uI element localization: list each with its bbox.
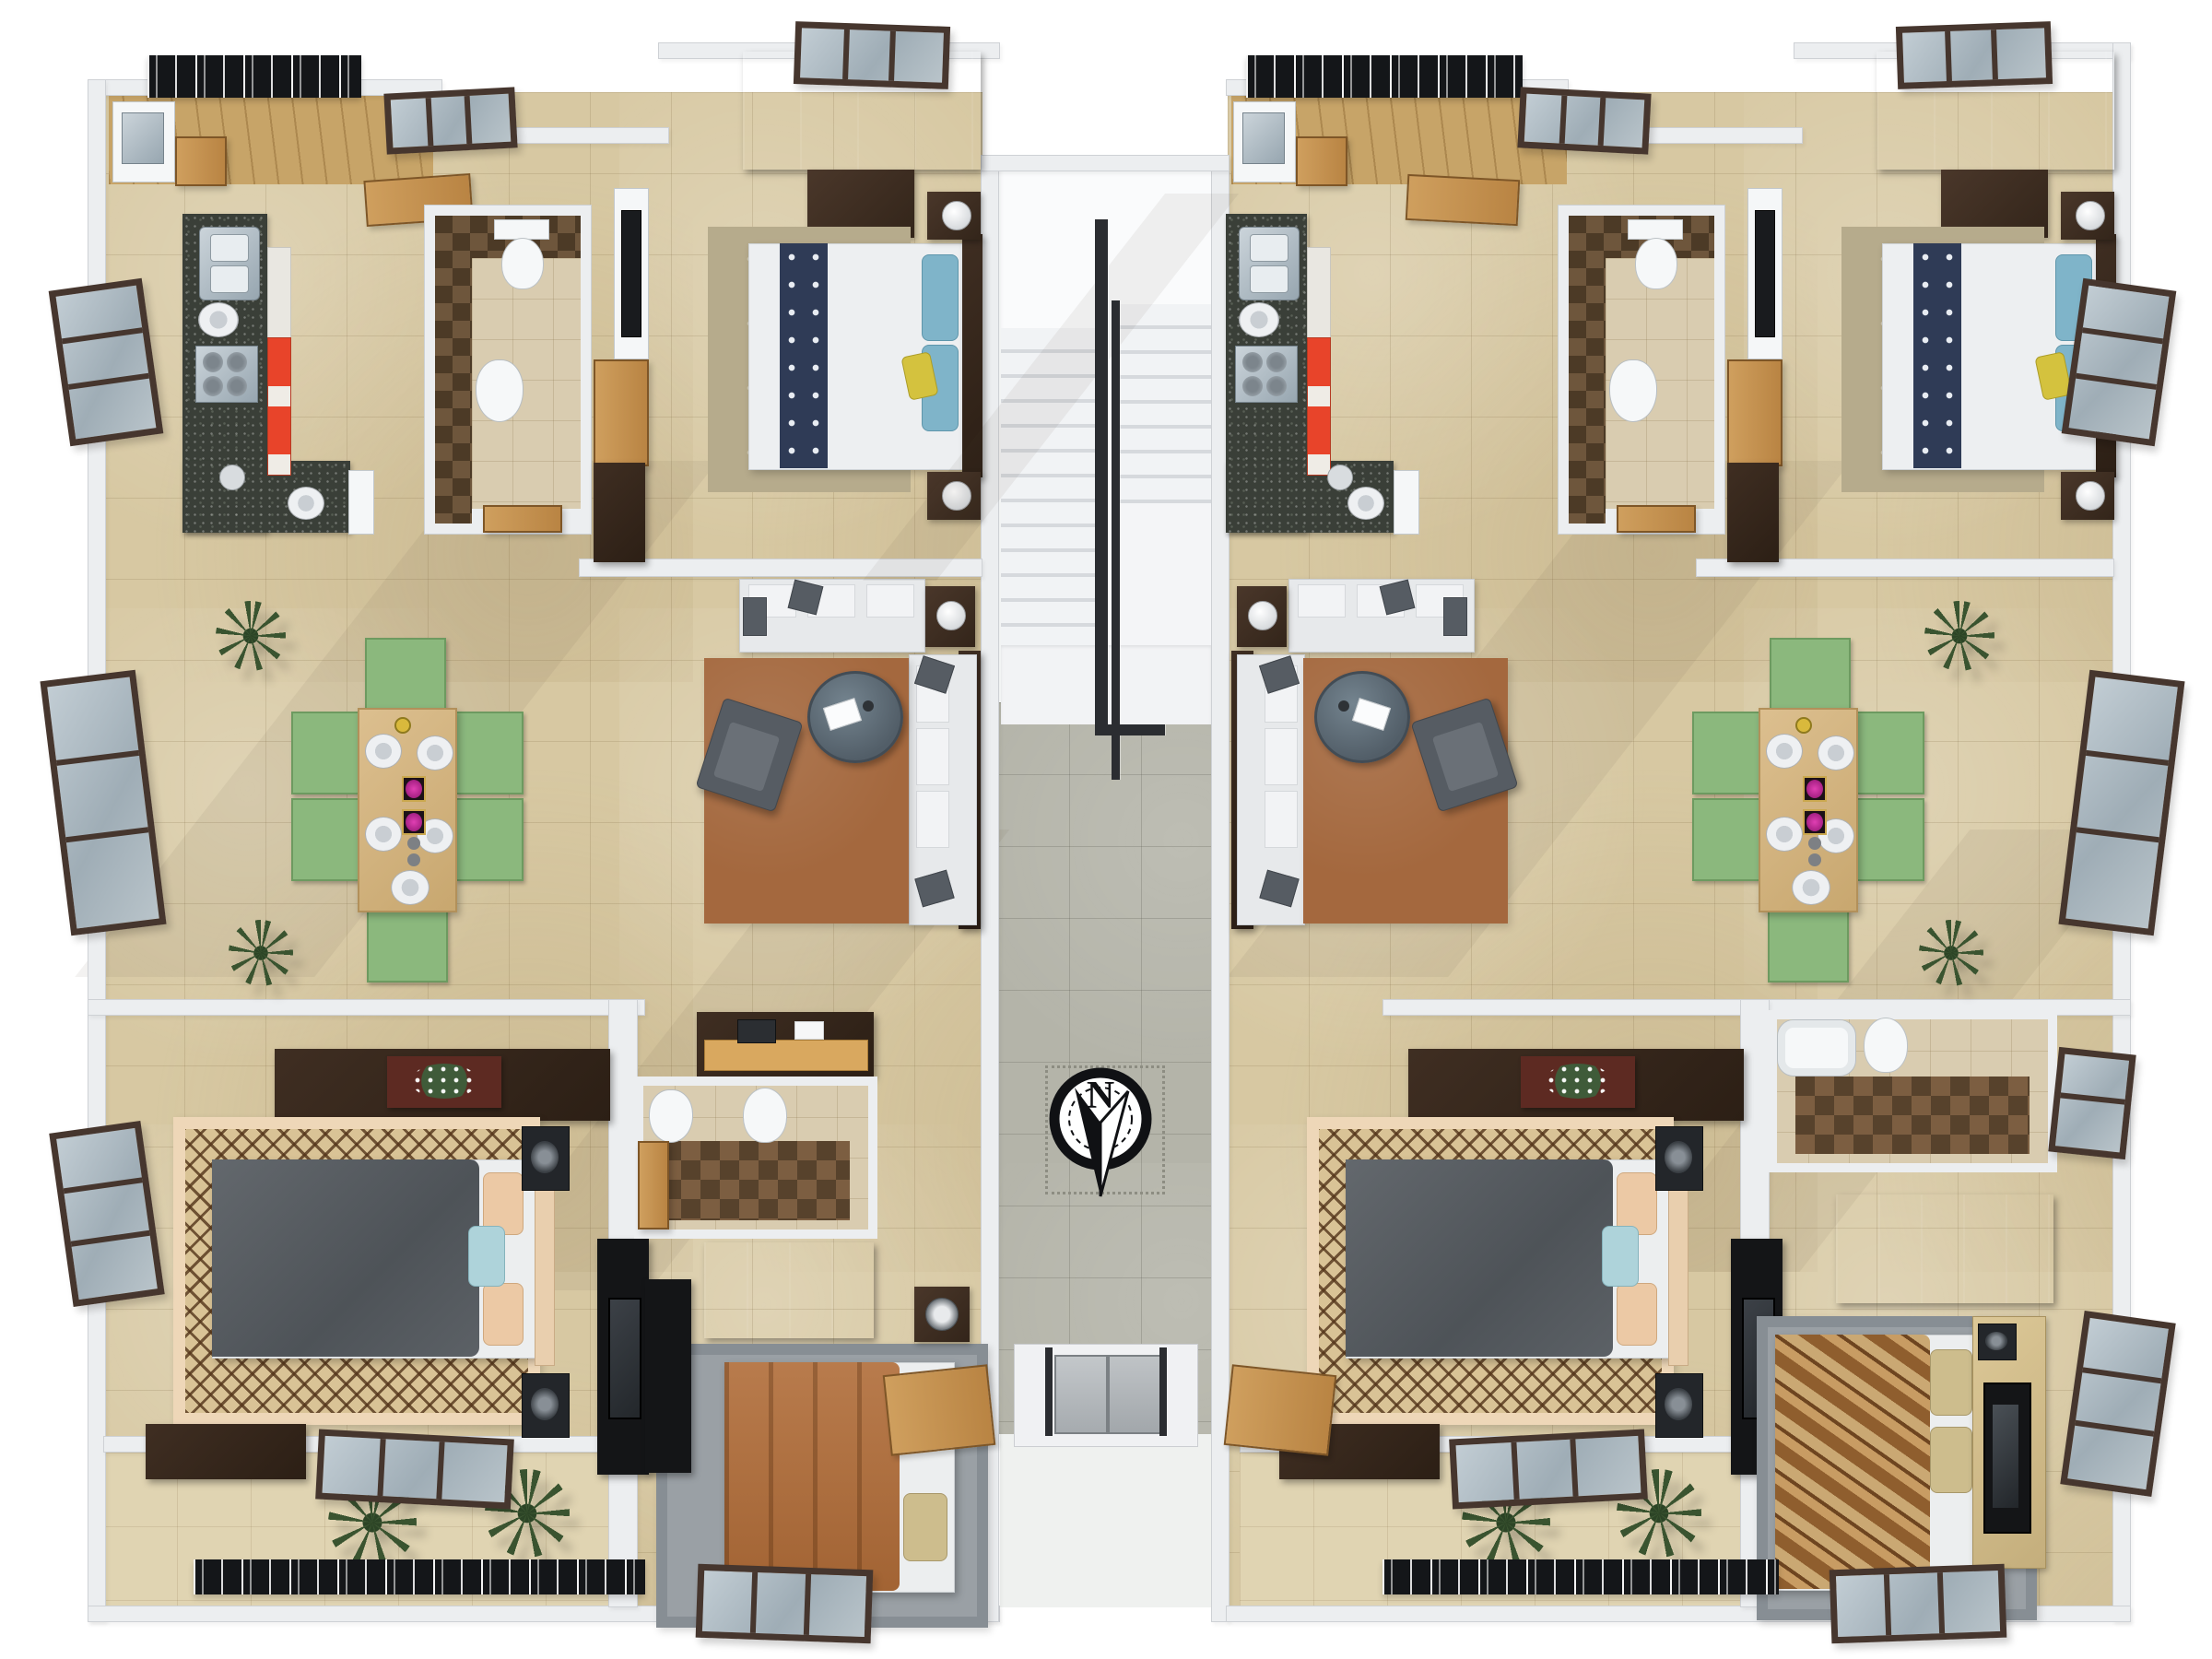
left-dining-bottle — [394, 717, 411, 734]
right-kitchen-plate — [1347, 487, 1384, 520]
left-bed3-telephone — [925, 1298, 959, 1331]
right-bed2-pillow-blue — [1602, 1226, 1639, 1287]
right-master-bath-wall-tiles — [1569, 216, 1606, 524]
right-bed2-blanket-gray — [1346, 1159, 1613, 1357]
left-stove-burner — [227, 376, 247, 396]
left-bed3-tv-unit — [645, 1279, 691, 1473]
right-stove-burner — [1242, 352, 1263, 372]
right-coffee-table-cup — [1338, 700, 1349, 712]
right-dining-flowers-bloom — [1806, 780, 1823, 798]
vestibule-floor — [1000, 1434, 1212, 1607]
left-dining-plate — [365, 817, 402, 852]
right-nightstand-lamp — [2076, 201, 2105, 230]
left-master-pillow-blue — [922, 254, 959, 341]
left-bed2-wall-desk — [146, 1424, 306, 1479]
left-southblock-north-wall — [88, 999, 645, 1016]
left-utility-railing — [147, 55, 361, 98]
left-master-bed-runner — [780, 243, 828, 468]
left-sofa-pillow — [743, 597, 767, 636]
compass-rose: N — [1047, 1067, 1158, 1206]
elevator-door-right — [1108, 1355, 1161, 1434]
right-dining-plate — [1766, 734, 1803, 769]
left-sofa2-cushion — [916, 791, 949, 848]
left-kitchen-counter-leg — [182, 461, 350, 533]
left-bath-side-cabinet-dark — [594, 463, 645, 562]
right-bed3-speaker — [1978, 1324, 2017, 1360]
right-dining-plate — [1818, 735, 1854, 771]
left-common-bath-door — [638, 1141, 669, 1230]
left-bath-side-cabinet-light — [594, 359, 649, 466]
left-kitchen-sink-bowl — [210, 265, 249, 293]
right-bed3-blanket-striped — [1775, 1335, 1930, 1589]
left-kitchen-counter-return — [348, 470, 374, 535]
left-kitchen-plate — [198, 302, 239, 337]
right-sofa-cushion — [1298, 584, 1346, 618]
left-side-table-lamp — [936, 601, 966, 630]
shared-tv-screen-left — [608, 1298, 641, 1419]
right-dining-plate — [1792, 870, 1830, 905]
left-utility-sink — [122, 112, 164, 164]
left-window-bedroom3-south — [696, 1564, 874, 1644]
left-common-basin — [649, 1089, 693, 1143]
left-unit-corridor-door — [883, 1364, 996, 1455]
left-window-top-foyer — [383, 87, 517, 154]
left-master-tv — [621, 210, 641, 337]
right-bed3-tv-screen — [1993, 1405, 2018, 1508]
right-window-top-foyer — [1517, 87, 1651, 154]
right-window-bedroom2-south — [1449, 1430, 1648, 1510]
right-stove-burner — [1266, 352, 1287, 372]
right-sofa2-cushion — [1265, 728, 1298, 785]
right-unit-corridor-door — [1224, 1364, 1337, 1455]
right-utility-door — [1296, 136, 1347, 186]
left-kitchen-cabinet-white — [267, 247, 291, 339]
stairs-right-landing — [1117, 503, 1211, 645]
right-dining-chair-e2 — [1856, 798, 1924, 881]
left-dining-flowers-bloom — [406, 813, 422, 831]
left-bed3-blanket-rust — [724, 1362, 900, 1591]
right-dining-cup — [1808, 853, 1821, 866]
left-master-bath-wall-tiles — [435, 216, 472, 524]
left-window-bedroom2-south — [315, 1430, 514, 1510]
right-common-bath-window — [2048, 1047, 2136, 1159]
palm-plant — [229, 920, 293, 986]
stairs-railing-foot — [1095, 724, 1165, 735]
left-bed2-pillow-peach — [483, 1283, 524, 1346]
right-bed2-pillow-peach — [1617, 1283, 1657, 1346]
right-utility-railing — [1246, 55, 1523, 98]
right-dining-plate — [1766, 817, 1803, 852]
left-stove-burner — [227, 352, 247, 372]
palm-plant — [216, 601, 286, 671]
right-bed3-pillow-khaki — [1930, 1349, 1972, 1416]
right-dining-chair-w1 — [1692, 712, 1760, 794]
left-master-toilet-tank — [494, 219, 549, 240]
right-bed2-speaker — [1655, 1126, 1703, 1191]
right-master-toilet — [1635, 238, 1677, 289]
left-stove-burner — [203, 352, 223, 372]
left-dining-chair-w2 — [291, 798, 359, 881]
left-common-bath-floor — [662, 1141, 850, 1220]
left-dining-chair-w1 — [291, 712, 359, 794]
left-bed2-planter-flowers — [411, 1064, 477, 1099]
left-dining-chair-bottom — [367, 907, 448, 982]
left-kitchen-cabinet-red — [267, 337, 291, 476]
right-stove-burner — [1242, 376, 1263, 396]
right-side-table-lamp — [1248, 601, 1277, 630]
right-window-top-bedroom — [1896, 21, 2053, 89]
right-master-bed-runner — [1913, 243, 1961, 468]
right-master-basin — [1609, 359, 1657, 422]
left-dining-chair-e1 — [455, 712, 524, 794]
right-utility-sink — [1242, 112, 1285, 164]
right-balcony-railing — [1382, 1559, 1779, 1594]
left-window-top-bedroom — [794, 21, 950, 89]
right-bed2-speaker — [1655, 1373, 1703, 1438]
right-unit-entry-door — [1406, 174, 1520, 226]
right-dining-bottle — [1795, 717, 1812, 734]
right-master-bath-door — [1617, 505, 1696, 533]
left-dining-cup — [407, 853, 420, 866]
left-master-basin — [476, 359, 524, 422]
left-coffee-table-cup — [863, 700, 874, 712]
right-kitchen-sink-bowl — [1250, 265, 1288, 293]
right-common-bathtub — [1777, 1019, 1856, 1077]
right-window-bedroom3-south — [1830, 1564, 2007, 1644]
left-bed2-speaker — [522, 1126, 570, 1191]
left-sofa-cushion — [866, 584, 914, 618]
right-dining-chair-top — [1770, 638, 1851, 713]
palm-plant — [1924, 601, 1994, 671]
right-dining-chair-w2 — [1692, 798, 1760, 881]
left-bed2-blanket-gray — [212, 1159, 479, 1357]
right-kitchen-cabinet-red — [1307, 337, 1331, 476]
right-common-toilet — [1864, 1018, 1908, 1073]
left-study-paper — [794, 1021, 824, 1040]
right-kitchen-cup — [1327, 465, 1353, 490]
stairs-center-railing — [1095, 219, 1108, 728]
left-dining-chair-top — [365, 638, 446, 713]
right-kitchen-counter-return — [1394, 470, 1419, 535]
left-balcony-railing — [194, 1559, 645, 1594]
right-bed2-planter-flowers — [1545, 1064, 1611, 1099]
left-dining-plate — [417, 735, 453, 771]
left-study-laptop — [737, 1019, 776, 1043]
floor-plan-render: N — [0, 0, 2212, 1659]
right-nightstand-lamp — [2076, 481, 2105, 511]
left-utility-door — [175, 136, 227, 186]
left-dining-cup — [407, 837, 420, 850]
left-bed3-pillow-khaki — [903, 1493, 947, 1561]
left-dining-flowers-bloom — [406, 780, 422, 798]
left-sofa2-cushion — [916, 728, 949, 785]
right-common-bath-floor — [1795, 1077, 2030, 1154]
stairs-right-railing — [1112, 300, 1120, 780]
right-stove-burner — [1266, 376, 1287, 396]
right-dining-flowers-bloom — [1806, 813, 1823, 831]
left-study-desk-top — [704, 1040, 868, 1071]
left-master-bath-door — [483, 505, 562, 533]
right-dining-chair-e1 — [1856, 712, 1924, 794]
left-dining-plate — [391, 870, 429, 905]
right-bed3-pillow-khaki — [1930, 1427, 1972, 1493]
svg-text:N: N — [1087, 1075, 1114, 1117]
elevator-frame-post — [1045, 1347, 1053, 1436]
left-stove-burner — [203, 376, 223, 396]
left-master-toilet — [501, 238, 544, 289]
left-kitchen-cup — [219, 465, 245, 490]
stairs-right-flight — [1117, 304, 1211, 503]
right-bath-side-cabinet-dark — [1727, 463, 1779, 562]
left-kitchen-plate — [288, 487, 324, 520]
stairhall-top-wall — [981, 155, 1230, 171]
right-kitchen-plate — [1239, 302, 1279, 337]
left-dining-plate — [365, 734, 402, 769]
right-bed3-wardrobe — [1836, 1194, 2053, 1303]
right-kitchen-cabinet-white — [1307, 247, 1331, 339]
left-nightstand-lamp — [942, 201, 971, 230]
right-bath-side-cabinet-light — [1727, 359, 1783, 466]
right-kitchen-sink-bowl — [1250, 234, 1288, 262]
right-sofa2-cushion — [1265, 791, 1298, 848]
right-master-tv — [1755, 210, 1775, 337]
left-dining-chair-e2 — [455, 798, 524, 881]
left-common-toilet — [743, 1088, 787, 1143]
right-master-toilet-tank — [1628, 219, 1683, 240]
left-bed3-wardrobe — [704, 1242, 874, 1338]
right-sofa-pillow — [1443, 597, 1467, 636]
right-dining-cup — [1808, 837, 1821, 850]
elevator-frame-post — [1159, 1347, 1167, 1436]
elevator-door-left — [1054, 1355, 1108, 1434]
left-bed2-speaker — [522, 1373, 570, 1438]
right-dining-chair-bottom — [1768, 907, 1849, 982]
palm-plant — [1919, 920, 1983, 986]
right-window-master — [2062, 278, 2177, 447]
left-kitchen-sink-bowl — [210, 234, 249, 262]
left-bed2-pillow-blue — [468, 1226, 505, 1287]
